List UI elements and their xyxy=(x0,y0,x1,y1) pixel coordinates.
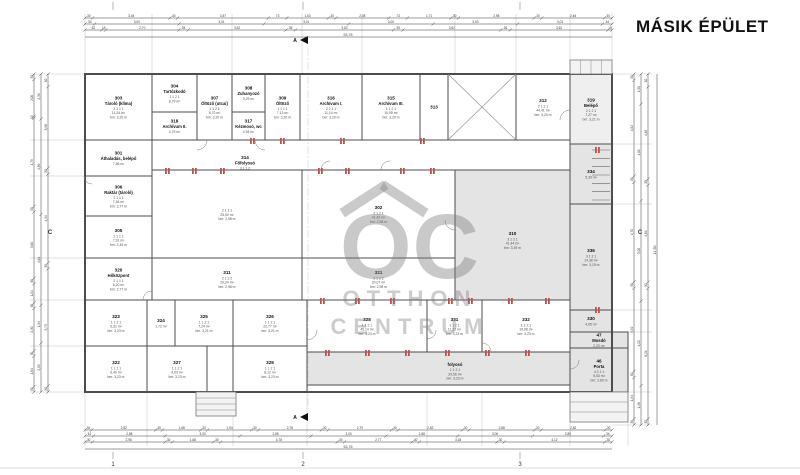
dimension-value: 73 xyxy=(396,14,400,18)
dimension-value: 30 xyxy=(630,372,634,376)
section-label: A xyxy=(293,38,297,44)
room-label: Áthaladás, belépő xyxy=(101,156,137,161)
room-label: 306 xyxy=(115,184,123,189)
opening-mark xyxy=(488,350,490,356)
dimension-value: 30 xyxy=(167,438,171,442)
dimension-value: 3,01 xyxy=(557,20,563,24)
dimension-value: 30 xyxy=(339,438,343,442)
dimension-value: 2,82 xyxy=(121,426,127,430)
room-label: 305 xyxy=(115,228,123,233)
dimension-value: 6,24 xyxy=(644,350,648,356)
dimension-value: 4,78 xyxy=(276,438,282,442)
dimension-value: 30 xyxy=(536,14,540,18)
dimension-value: 1,50 xyxy=(637,86,641,92)
room-label: Zuhanyozó xyxy=(237,91,260,96)
dimension-total: 53,76 xyxy=(344,445,353,449)
opening-mark xyxy=(280,138,282,144)
opening-mark xyxy=(405,350,407,356)
dimension-value: 30 xyxy=(630,177,634,181)
opening-mark xyxy=(408,350,410,356)
room-label: 326 xyxy=(266,314,274,319)
dimension-value: 30 xyxy=(87,14,91,18)
room-label: Tartózkodó xyxy=(163,89,186,94)
dimension-value: 30 xyxy=(87,438,91,442)
room-label: Raktár (tároló) xyxy=(104,190,133,195)
dimension-value: 30 xyxy=(202,426,206,430)
room-label: bm: 3,19 m xyxy=(583,263,600,267)
dimension-value: 30 xyxy=(30,75,34,79)
room-label: 8,79 m² xyxy=(169,99,181,103)
dimension-value: 34 xyxy=(605,20,609,24)
room-label: bm: 2,80 m xyxy=(591,378,608,382)
dimension-value: 30 xyxy=(44,387,48,391)
dimension-value: 3,00 xyxy=(492,432,498,436)
dimension-value: 30 xyxy=(330,14,334,18)
room-label: bm: 3,20 m xyxy=(110,115,127,119)
opening-mark xyxy=(525,350,527,356)
opening-mark xyxy=(430,168,432,174)
dimension-value: 4,34 xyxy=(44,215,48,221)
dimension-value: 30 xyxy=(87,426,91,430)
dimension-value: 3,63 xyxy=(341,26,347,30)
dimension-value: 3,18 xyxy=(455,438,461,442)
grid-letter: C xyxy=(48,230,53,236)
section-arrow xyxy=(300,413,308,421)
room-label: 314 xyxy=(241,155,249,160)
opening-mark xyxy=(595,307,597,313)
room-label: bm: 3,23 m xyxy=(108,329,125,333)
room-label: Öltöző (utcai) xyxy=(201,101,228,106)
room-label: bm: 3,21 m xyxy=(583,117,600,121)
room-label: bm: 2,45 m xyxy=(110,243,127,247)
opening-mark xyxy=(283,138,285,144)
dimension-value: 3,60 xyxy=(30,242,34,248)
room-label: bm: 2,77 m xyxy=(110,204,127,208)
dimension-value: 3,01 xyxy=(218,20,224,24)
dimension-value: 30 xyxy=(644,283,648,287)
dimension-value: 1,68 xyxy=(179,426,185,430)
dimension-value: 35 xyxy=(504,26,508,30)
room-label: 327 xyxy=(173,360,181,365)
room-label: 321 xyxy=(375,270,383,275)
room-label: 7,86 m² xyxy=(113,162,125,166)
dimension-value: 30 xyxy=(215,438,219,442)
dimension-value: 2,70 xyxy=(139,26,145,30)
dimension-value: 30 xyxy=(644,420,648,424)
opening-mark xyxy=(320,298,322,304)
dimension-value: 35 xyxy=(396,26,400,30)
section-label: A xyxy=(293,415,297,421)
room-label: 1,72 m² xyxy=(155,325,167,329)
opening-mark xyxy=(485,350,487,356)
room-label: bm: 2,98 m xyxy=(219,285,236,289)
room-label: bm: 3,23 m xyxy=(518,332,535,336)
opening-mark xyxy=(340,138,342,144)
room-label: bm: 3,23 m xyxy=(359,332,376,336)
room-label: 4,94 m² xyxy=(243,130,255,134)
room-label: 309 xyxy=(279,95,287,100)
opening-mark xyxy=(393,298,395,304)
dimension-value: 5,73 xyxy=(44,324,48,330)
room-label: Archívum III. xyxy=(378,101,403,106)
dimension-value: 2,77 xyxy=(375,438,381,442)
dimension-value: 62 xyxy=(92,26,96,30)
dimension-value: 2,82 xyxy=(570,426,576,430)
room-label: Mosdó xyxy=(592,338,606,343)
dimension-value: 30 xyxy=(414,438,418,442)
room-label: 4,79 m² xyxy=(169,130,181,134)
dimension-value: 4,64 xyxy=(37,257,41,263)
dimension-value: 4,70 xyxy=(630,229,634,235)
room-label: 334 xyxy=(587,169,595,174)
dimension-value: 2,30 xyxy=(30,326,34,332)
page-title: MÁSIK ÉPÜLET xyxy=(636,17,796,37)
opening-mark xyxy=(192,168,194,174)
dimension-value: 30 xyxy=(323,426,327,430)
dimension-value: 2,78 xyxy=(287,426,293,430)
opening-mark xyxy=(448,350,450,356)
dimension-value: 30 xyxy=(253,426,257,430)
opening-mark xyxy=(195,168,197,174)
room-label: bm: 3,20 m xyxy=(383,115,400,119)
grid-number: 2 xyxy=(301,462,305,468)
room-label: 3,29 m² xyxy=(243,97,255,101)
opening-mark xyxy=(598,307,600,313)
dimension-value: 30 xyxy=(44,169,48,173)
dimension-value: 3,62 xyxy=(449,26,455,30)
dimension-value: 3,98 xyxy=(44,124,48,130)
opening-mark xyxy=(448,298,450,304)
dimension-value: 3,92 xyxy=(630,326,634,332)
dimension-value: 3,62 xyxy=(234,26,240,30)
dimension-value: 1,71 xyxy=(426,14,432,18)
opening-mark xyxy=(328,350,330,356)
dimension-value: 34 xyxy=(88,20,92,24)
dimension-value: 30 xyxy=(30,207,34,211)
floorplan-drawing: 303Tároló (klíma)2 1 1 111,24 m²bm: 3,20… xyxy=(0,0,800,475)
dimension-value: 30 xyxy=(644,180,648,184)
room-314 xyxy=(152,140,570,170)
dimension-value: 30 xyxy=(630,283,634,287)
room-label: folyosó xyxy=(448,362,463,367)
opening-mark xyxy=(318,168,320,174)
dimension-value: 2,98 xyxy=(126,438,132,442)
opening-mark xyxy=(545,298,547,304)
room-label: 310 xyxy=(509,231,517,236)
room-label: bm: 3,23 m xyxy=(108,375,125,379)
dimension-value: 2,08 xyxy=(359,14,365,18)
room-label: 319 xyxy=(587,97,595,102)
dimension-value: 2,88 xyxy=(126,432,132,436)
grid-letter: C xyxy=(638,230,643,236)
room-label: bm: 2,77 m xyxy=(110,287,127,291)
opening-mark xyxy=(250,138,252,144)
opening-mark xyxy=(165,168,167,174)
opening-mark xyxy=(343,138,345,144)
opening-mark xyxy=(390,298,392,304)
room-label: Főfolyosó xyxy=(235,161,255,166)
dimension-value: 1,96 xyxy=(637,402,641,408)
room-label: bm: 3,23 m xyxy=(262,375,279,379)
dimension-value: 5,00 xyxy=(637,248,641,254)
dimension-value: 35 xyxy=(182,26,186,30)
dimension-value: 1,63 xyxy=(304,14,310,18)
dimension-value: 4,64 xyxy=(644,230,648,236)
opening-mark xyxy=(168,168,170,174)
dimension-value: 3,00 xyxy=(388,20,394,24)
dimension-value: 30 xyxy=(607,438,611,442)
floorplan-page: 303Tároló (klíma)2 1 1 111,24 m²bm: 3,20… xyxy=(0,0,800,475)
room-label: 304 xyxy=(171,83,179,88)
room-label: bm: 2,98 m xyxy=(219,217,236,221)
grid-number: 3 xyxy=(518,462,522,468)
room-label: 323 xyxy=(112,314,120,319)
dimension-value: 15 xyxy=(608,26,612,30)
room-label: bm: 2,98 m xyxy=(370,285,387,289)
dimension-value: 3,04 xyxy=(128,14,134,18)
dimension-value: 3,00 xyxy=(200,432,206,436)
room-label: 307 xyxy=(211,95,219,100)
dimension-value: 2,46 xyxy=(570,14,576,18)
dimension-value: 3,01 xyxy=(303,20,309,24)
opening-mark xyxy=(471,298,473,304)
dimension-value: 15 xyxy=(102,26,106,30)
room-label: Kézmosó, wc xyxy=(235,124,262,129)
room-label: 318 xyxy=(171,119,179,124)
room-label: 317 xyxy=(245,119,253,124)
dimension-value: 30 xyxy=(630,420,634,424)
opening-mark xyxy=(511,298,513,304)
dimension-value: 62 xyxy=(44,78,48,82)
dimension-value: 4,89 xyxy=(37,163,41,169)
dimension-value: 4,52 xyxy=(630,125,634,131)
opening-mark xyxy=(423,138,425,144)
room-label: bm: 3,20 m xyxy=(274,115,291,119)
dimension-value: 1,94 xyxy=(37,321,41,327)
dimension-total: 53,76 xyxy=(344,33,353,37)
opening-mark xyxy=(468,298,470,304)
dimension-value: 2,88 xyxy=(499,426,505,430)
dimension-value: 35 xyxy=(289,26,293,30)
room-label: 330 xyxy=(587,316,595,321)
room-unnumbered xyxy=(307,352,570,385)
room-label: 328 xyxy=(363,317,371,322)
room-label: bm: 3,20 m xyxy=(323,115,340,119)
dimension-value: 30 xyxy=(30,352,34,356)
dimension-value: 2,85 xyxy=(272,432,278,436)
room-label: 312 xyxy=(539,98,547,103)
room-label: 315 xyxy=(387,95,395,100)
room-label: Tároló (klíma) xyxy=(105,101,133,106)
dimension-value: 30 xyxy=(464,426,468,430)
dimension-value: 4,82 xyxy=(637,149,641,155)
opening-mark xyxy=(403,168,405,174)
grid-number: 1 xyxy=(111,462,115,468)
room-label: bm: 3,21 m xyxy=(262,329,279,333)
dimension-value: 2,30 xyxy=(37,93,41,99)
dimension-value: 1,04 xyxy=(30,290,34,296)
dimension-value: 3,57 xyxy=(220,14,226,18)
dimension-value: 30 xyxy=(30,387,34,391)
dimension-value: 30 xyxy=(499,438,503,442)
room-label: bm: 3,20 m xyxy=(535,113,552,117)
dimension-value: 3,00 xyxy=(345,432,351,436)
opening-mark xyxy=(508,298,510,304)
dimension-value: 4,40 xyxy=(644,130,648,136)
dimension-value: 30 xyxy=(607,426,611,430)
dimension-value: 4,12 xyxy=(551,438,557,442)
room-label: 5,39 m² xyxy=(585,176,597,180)
room-label: 302 xyxy=(375,205,383,210)
room-label: 332 xyxy=(522,317,530,322)
opening-mark xyxy=(220,168,222,174)
dimension-value: 1,94 xyxy=(630,395,634,401)
opening-mark xyxy=(595,147,597,153)
room-label: 336 xyxy=(587,248,595,253)
room-label: 316 xyxy=(327,95,335,100)
dimension-value: 1,68 xyxy=(190,438,196,442)
dimension-value: 2,88 xyxy=(419,432,425,436)
opening-mark xyxy=(321,168,323,174)
room-label: 320 xyxy=(115,267,123,272)
dimension-value: 30 xyxy=(172,14,176,18)
room-label: 322 xyxy=(112,360,120,365)
room-label: Archívum II. xyxy=(163,124,187,129)
dimension-value: 62 xyxy=(644,78,648,82)
room-label: Archívum I. xyxy=(320,101,343,106)
room-label: bm: 3,21 m xyxy=(196,329,213,333)
dimension-value: 3,00 xyxy=(472,20,478,24)
dimension-value: 2,50 xyxy=(37,364,41,370)
dimension-value: 30 xyxy=(157,426,161,430)
room-label: bm: 3,23 m xyxy=(446,332,463,336)
room-label: Belépő xyxy=(584,103,598,108)
room-label: 303 xyxy=(115,95,123,100)
opening-mark xyxy=(348,168,350,174)
dimension-value: 2,98 xyxy=(493,14,499,18)
dimension-value: 30 xyxy=(536,426,540,430)
dimension-value: 30 xyxy=(30,304,34,308)
dimension-value: 10 xyxy=(30,115,34,119)
dimension-value: 4,79 xyxy=(30,159,34,165)
dimension-value: 30 xyxy=(30,279,34,283)
room-label: Hőközpont xyxy=(108,273,130,278)
dimension-value: 2,82 xyxy=(427,426,433,430)
dimension-total: 14,50 xyxy=(653,246,657,255)
dimension-value: 1,94 xyxy=(226,426,232,430)
opening-mark xyxy=(548,298,550,304)
room-label: 313 xyxy=(430,104,438,109)
opening-mark xyxy=(451,298,453,304)
dimension-value: 30 xyxy=(44,264,48,268)
dimension-value: 34 xyxy=(606,432,610,436)
opening-mark xyxy=(223,168,225,174)
room-label: bm: 3,23 m xyxy=(169,375,186,379)
dimension-value: 2,85 xyxy=(565,432,571,436)
opening-mark xyxy=(355,298,357,304)
room-label: Porta xyxy=(594,364,605,369)
opening-mark xyxy=(400,168,402,174)
room-label: 324 xyxy=(157,318,165,323)
opening-mark xyxy=(365,350,367,356)
room-label: 331 xyxy=(451,317,459,322)
room-label: bm: 3,39 m xyxy=(504,246,521,250)
opening-mark xyxy=(323,298,325,304)
room-label: 311 xyxy=(223,270,231,275)
opening-mark xyxy=(345,168,347,174)
dimension-value: 30 xyxy=(630,75,634,79)
room-label: bm: 2,98 m xyxy=(370,220,387,224)
room-label: bm: 3,23 m xyxy=(447,377,464,381)
room-label: 47 xyxy=(596,333,602,338)
opening-mark xyxy=(598,147,600,153)
dimension-value: 2,00 xyxy=(30,95,34,101)
dimension-value: 3,00 xyxy=(134,20,140,24)
opening-mark xyxy=(433,168,435,174)
dimension-value: 30 xyxy=(453,14,457,18)
room-label: bm: 3,20 m xyxy=(206,115,223,119)
opening-mark xyxy=(420,138,422,144)
dimension-value: 1,64 xyxy=(30,368,34,374)
dimension-value: 73 xyxy=(276,14,280,18)
room-label: 308 xyxy=(245,86,253,91)
dimension-value: 30 xyxy=(606,14,610,18)
entrance-steps xyxy=(570,392,628,422)
room-label: 4,05 m² xyxy=(585,323,597,327)
dimension-value: 30 xyxy=(393,426,397,430)
opening-mark xyxy=(368,350,370,356)
opening-mark xyxy=(358,298,360,304)
dimension-value: 4,22 xyxy=(637,340,641,346)
dimension-value: 2,79 xyxy=(357,426,363,430)
dimension-value: 3,62 xyxy=(556,26,562,30)
room-label: 301 xyxy=(115,151,123,156)
room-label: Öltöző xyxy=(276,101,289,106)
dimension-value: 34 xyxy=(87,432,91,436)
opening-mark xyxy=(445,350,447,356)
opening-mark xyxy=(253,138,255,144)
room-label: 329 xyxy=(266,360,274,365)
opening-mark xyxy=(325,350,327,356)
room-label: 325 xyxy=(200,314,208,319)
opening-mark xyxy=(528,350,530,356)
room-label: 46 xyxy=(596,358,602,363)
